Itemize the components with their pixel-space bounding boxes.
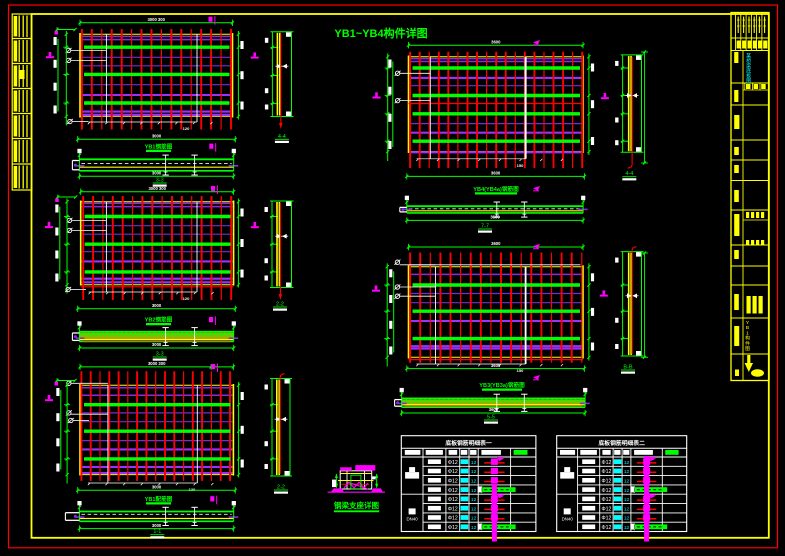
svg-text:120: 120: [183, 126, 190, 131]
svg-text:150: 150: [517, 163, 524, 168]
svg-text:DN40: DN40: [562, 516, 574, 521]
svg-text:3000: 3000: [152, 342, 162, 347]
svg-text:12: 12: [624, 460, 630, 466]
svg-text:Φ12: Φ12: [601, 506, 611, 512]
svg-text:3600: 3600: [491, 171, 501, 176]
svg-text:12: 12: [471, 460, 477, 466]
svg-text:3000 300: 3000 300: [148, 361, 166, 366]
svg-text:12: 12: [471, 469, 477, 475]
svg-text:Φ12: Φ12: [601, 516, 611, 522]
svg-text:Φ12: Φ12: [601, 525, 611, 531]
svg-text:12: 12: [624, 469, 630, 475]
svg-text:YB2钢筋图: YB2钢筋图: [145, 316, 173, 324]
svg-text:YB1钢筋图: YB1钢筋图: [145, 142, 173, 150]
svg-text:Φ12: Φ12: [448, 488, 458, 494]
svg-text:12: 12: [471, 497, 477, 503]
svg-text:YB3(YB3a)钢筋图: YB3(YB3a)钢筋图: [479, 381, 525, 389]
svg-text:3600: 3600: [491, 241, 501, 246]
svg-text:YB1~YB4构件详图: YB1~YB4构件详图: [334, 26, 427, 40]
svg-text:3600: 3600: [489, 407, 499, 412]
svg-text:Φ12: Φ12: [448, 516, 458, 522]
svg-text:12: 12: [471, 488, 477, 494]
svg-text:件: 件: [745, 340, 750, 347]
svg-text:3000: 3000: [152, 170, 162, 175]
svg-text:DN40: DN40: [406, 516, 418, 521]
svg-text:3600: 3600: [491, 363, 501, 368]
svg-text:Φ12: Φ12: [448, 469, 458, 475]
svg-text:图: 图: [745, 346, 750, 352]
svg-text:3000: 3000: [152, 485, 162, 490]
svg-text:12: 12: [624, 488, 630, 494]
svg-text:Φ12: Φ12: [601, 488, 611, 494]
svg-text:Φ12: Φ12: [448, 525, 458, 531]
svg-text:3000: 3000: [152, 303, 162, 308]
svg-text:Φ12: Φ12: [601, 469, 611, 475]
svg-text:12: 12: [624, 516, 630, 522]
svg-text:12: 12: [471, 506, 477, 512]
svg-text:Φ12: Φ12: [601, 497, 611, 503]
svg-text:Φ12: Φ12: [448, 460, 458, 466]
svg-text:YB1配筋图: YB1配筋图: [145, 495, 173, 503]
svg-text:1: 1: [746, 330, 749, 336]
svg-text:3000 300: 3000 300: [147, 17, 165, 22]
svg-text:底板钢筋明细表一: 底板钢筋明细表一: [445, 439, 492, 447]
svg-text:12: 12: [624, 479, 630, 485]
svg-text:12: 12: [471, 479, 477, 485]
svg-text:Φ12: Φ12: [448, 479, 458, 485]
svg-text:图: 图: [746, 79, 751, 85]
svg-text:12: 12: [624, 506, 630, 512]
svg-text:12: 12: [624, 497, 630, 503]
svg-text:3000: 3000: [152, 134, 162, 139]
svg-text:3000 300: 3000 300: [148, 186, 166, 191]
svg-text:3600: 3600: [490, 215, 500, 220]
svg-text:3600: 3600: [491, 39, 501, 44]
svg-text:3000: 3000: [152, 523, 162, 528]
svg-text:YB4(YB4a)钢筋图: YB4(YB4a)钢筋图: [473, 185, 519, 193]
svg-text:120: 120: [189, 487, 196, 492]
svg-text:120: 120: [183, 296, 190, 301]
svg-text:Φ12: Φ12: [448, 506, 458, 512]
svg-text:Φ12: Φ12: [601, 460, 611, 466]
svg-text:B: B: [746, 325, 749, 331]
svg-text:12: 12: [471, 516, 477, 522]
svg-text:底板钢筋明细表二: 底板钢筋明细表二: [599, 439, 646, 447]
svg-text:12: 12: [471, 525, 477, 531]
svg-text:Φ12: Φ12: [601, 479, 611, 485]
svg-text:12: 12: [624, 525, 630, 531]
svg-text:构: 构: [745, 335, 750, 342]
svg-text:Φ12: Φ12: [448, 497, 458, 503]
svg-text:钢梁支座详图: 钢梁支座详图: [334, 500, 379, 510]
